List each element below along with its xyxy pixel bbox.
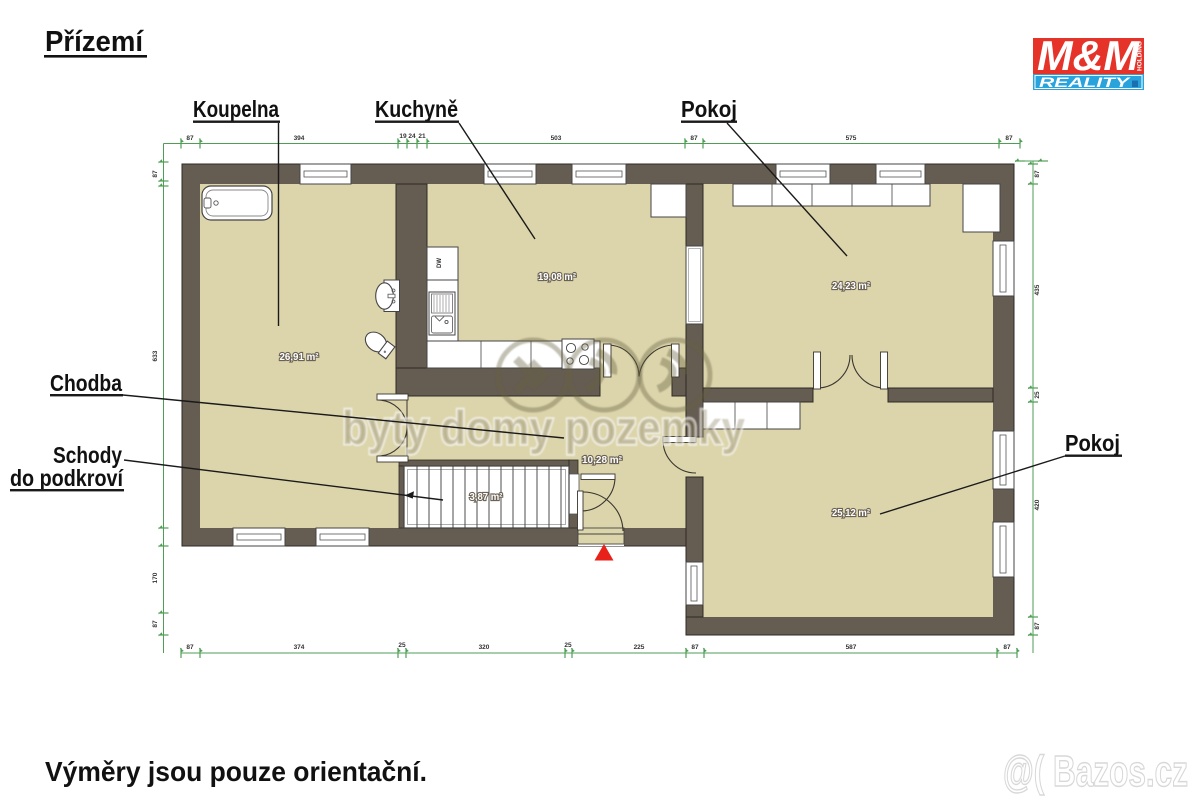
svg-text:Koupelna: Koupelna [193,96,279,122]
svg-text:87: 87 [152,620,159,628]
svg-text:Chodba: Chodba [50,370,122,396]
svg-text:320: 320 [479,644,490,651]
svg-text:REALITY: REALITY [1039,74,1131,90]
svg-text:24,23 m²: 24,23 m² [832,281,871,292]
svg-text:87: 87 [1005,135,1013,142]
svg-text:25: 25 [564,642,572,649]
svg-text:435: 435 [1034,284,1041,295]
svg-text:394: 394 [294,135,305,142]
svg-text:10,28 m²: 10,28 m² [582,455,623,466]
svg-text:87: 87 [690,135,698,142]
svg-text:25: 25 [1034,391,1041,399]
svg-text:do podkroví: do podkroví [10,465,124,491]
svg-text:3,87 m²: 3,87 m² [470,492,504,503]
svg-text:21: 21 [418,133,426,140]
svg-text:420: 420 [1034,499,1041,510]
svg-text:25: 25 [398,642,406,649]
svg-text:Pokoj: Pokoj [681,96,737,122]
svg-text:M&M: M&M [1037,32,1140,79]
svg-text:19: 19 [399,133,407,140]
svg-text:87: 87 [691,644,699,651]
svg-text:19,08 m²: 19,08 m² [538,272,577,283]
svg-text:HOLDING: HOLDING [1137,41,1144,71]
svg-text:DW: DW [437,258,443,268]
svg-text:@( Bazos.cz: @( Bazos.cz [1003,747,1188,796]
svg-text:503: 503 [551,135,562,142]
svg-text:633: 633 [152,350,159,361]
svg-text:587: 587 [846,644,857,651]
svg-text:byty domy pozemky: byty domy pozemky [342,401,745,454]
svg-text:24: 24 [408,133,416,140]
svg-text:87: 87 [1034,170,1041,178]
svg-text:Pokoj: Pokoj [1065,430,1120,456]
svg-text:87: 87 [152,170,159,178]
svg-text:Kuchyně: Kuchyně [375,96,458,122]
svg-text:87: 87 [1034,622,1041,630]
svg-text:Výměry jsou pouze orientační.: Výměry jsou pouze orientační. [45,756,427,787]
svg-text:26,91 m²: 26,91 m² [280,352,320,363]
svg-text:170: 170 [152,572,159,583]
svg-text:87: 87 [186,135,194,142]
svg-text:25,12 m²: 25,12 m² [832,508,871,519]
svg-text:575: 575 [846,135,857,142]
svg-text:Přízemí: Přízemí [45,26,144,58]
svg-text:87: 87 [186,644,194,651]
svg-text:225: 225 [634,644,645,651]
svg-text:87: 87 [1003,644,1011,651]
svg-text:374: 374 [294,644,305,651]
